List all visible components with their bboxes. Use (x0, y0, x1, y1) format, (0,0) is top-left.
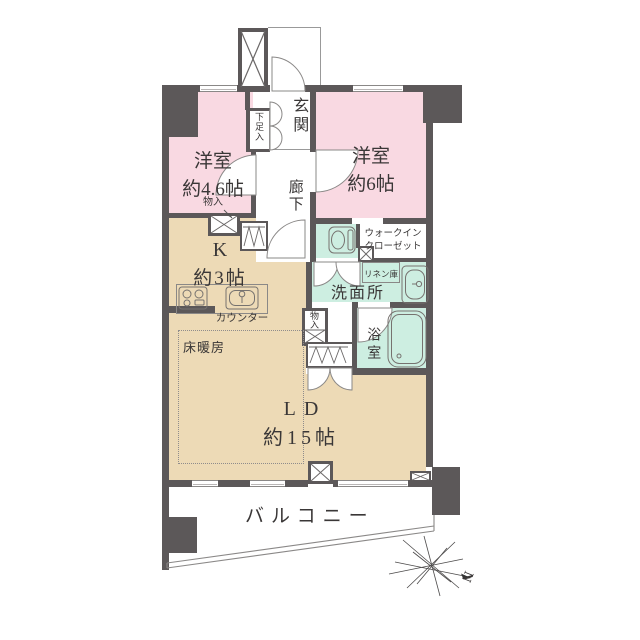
bathtub-icon (388, 311, 426, 367)
entrance-label: 玄関 (287, 97, 310, 135)
living-closet-door-left (308, 368, 330, 390)
shoe-door-bottom (270, 126, 282, 150)
bedroom-large-label: 洋室 約6帖 (318, 143, 424, 198)
hallway-label: 廊下 (283, 179, 305, 213)
storage-living-cross-icon (305, 330, 325, 343)
living-dining-label: LD 約15帖 (240, 395, 362, 453)
walk-in-closet-label: ウォークイン クローゼット (362, 228, 424, 254)
bedroom-large-size: 約6帖 (318, 171, 424, 199)
floor-heating-label: 床暖房 (183, 339, 225, 358)
living-closet-door-right (330, 368, 352, 390)
wic-line1: ウォークイン (362, 228, 424, 241)
kitchen-size: 約3帖 (176, 265, 264, 293)
washbasin-icon (402, 266, 428, 303)
shoe-cabinet-label: 下足入 (252, 112, 265, 142)
storage-kitchen-cross-icon (211, 216, 237, 233)
shelf-living-zigzag-icon (309, 347, 348, 363)
ld-size: 約15帖 (240, 424, 362, 453)
counter-label: カウンター (215, 311, 269, 326)
floor-plan: 洋室 約4.6帖 洋室 約6帖 玄関 下足入 廊下 K 約3帖 カウンター 物入… (0, 0, 640, 640)
bedroom-large-name: 洋室 (318, 143, 424, 171)
storage-kitchen-arrow (224, 210, 232, 218)
entrance-door (272, 57, 305, 91)
hallway-ld-door (267, 220, 305, 258)
toilet-icon (329, 227, 355, 253)
linen-cabinet-label: リネン庫 (364, 268, 398, 280)
bedroom-small-name: 洋室 (160, 148, 266, 176)
shaft-cross-icon (241, 31, 265, 87)
kitchen-name: K (176, 236, 264, 265)
shoe-door-top (270, 102, 282, 126)
window-pillar-cross-icon (311, 464, 330, 481)
balcony-label: バルコニー (245, 503, 375, 531)
storage-living-label: 物入 (307, 311, 320, 329)
washroom-label: 洗面所 (331, 282, 385, 305)
wic-line2: クローゼット (362, 241, 424, 254)
compass-icon (389, 536, 471, 596)
ld-name: LD (240, 395, 362, 424)
bedroom-small-label: 洋室 約4.6帖 (160, 148, 266, 203)
kitchen-label: K 約3帖 (176, 236, 264, 293)
storage-kitchen-label: 物入 (203, 196, 223, 211)
bathroom-label: 浴室 (362, 327, 382, 363)
vent-cross-icon (412, 473, 429, 480)
